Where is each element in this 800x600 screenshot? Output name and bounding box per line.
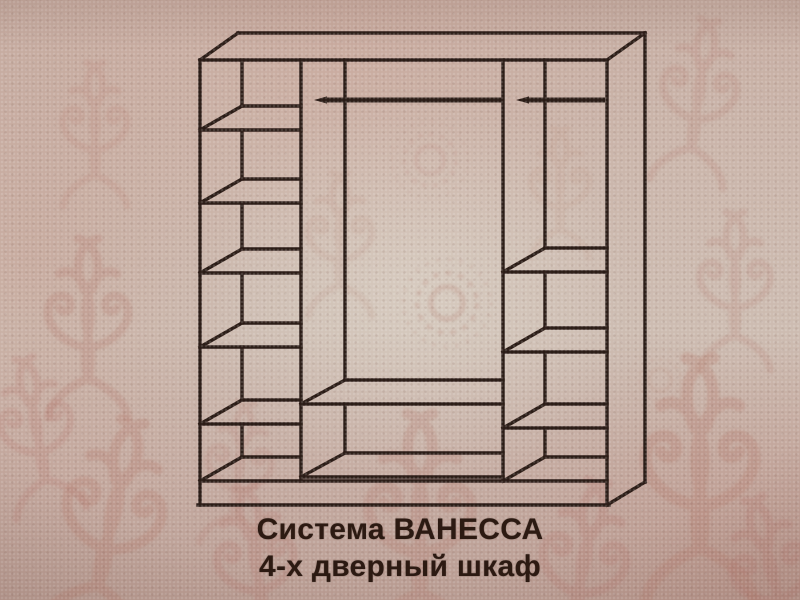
wardrobe-diagram [0, 0, 800, 600]
caption-series-name: Система ВАНЕССА [0, 511, 800, 548]
caption-product-type: 4-х дверный шкаф [0, 548, 800, 585]
caption: Система ВАНЕССА 4-х дверный шкаф [0, 511, 800, 585]
catalog-page: Система ВАНЕССА 4-х дверный шкаф [0, 0, 800, 600]
hanging-rails [314, 96, 605, 103]
